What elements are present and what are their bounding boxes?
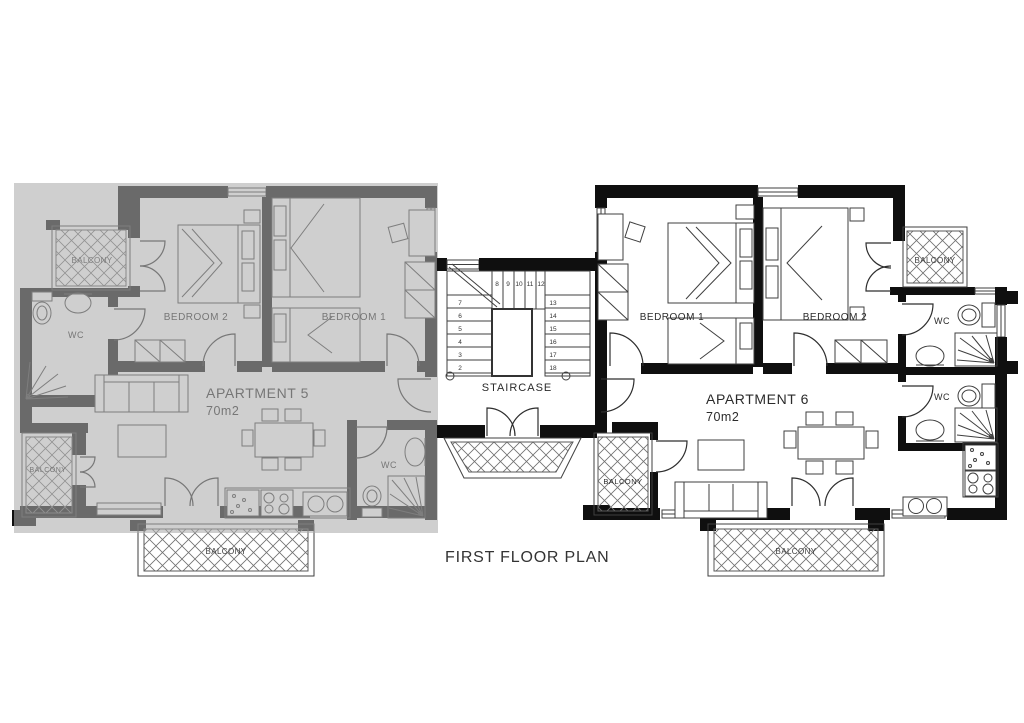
apartment-6-wc-lower-label: WC	[934, 392, 950, 402]
nightstand	[736, 205, 754, 219]
bedroom2-door	[794, 333, 827, 366]
step-number: 13	[549, 300, 557, 307]
entrance-porch	[444, 438, 581, 478]
step-number: 5	[458, 326, 462, 333]
step-number: 14	[549, 313, 557, 320]
wc-door	[902, 386, 933, 417]
side-balcony-door	[656, 441, 687, 472]
step-number: 11	[527, 281, 534, 288]
step-number: 7	[458, 300, 462, 307]
floor-plan-canvas: BALCONY BALCONY BALCONY WC	[0, 0, 1024, 723]
bottom-balcony-door	[825, 478, 853, 506]
apartment-6-bedroom-1: BEDROOM 1	[598, 205, 754, 364]
double-bed	[763, 208, 848, 320]
step-number: 18	[549, 365, 557, 372]
step-number: 8	[495, 281, 499, 288]
apartment-6-wc-upper: WC	[916, 303, 997, 366]
bottom-balcony-door	[792, 478, 820, 506]
step-number: 16	[549, 339, 557, 346]
single-bed	[668, 318, 754, 364]
shower-icon	[955, 333, 997, 366]
apartment-5: BALCONY BALCONY BALCONY WC	[12, 183, 438, 576]
apartment-6-bedroom-2-label: BEDROOM 2	[803, 312, 868, 323]
stair-void	[492, 309, 532, 376]
apartment-6: BALCONY BALCONY BALCONY	[583, 185, 1018, 576]
apartment-6-wc-upper-label: WC	[934, 316, 950, 326]
staircase-label: STAIRCASE	[482, 382, 553, 394]
plan-title: FIRST FLOOR PLAN	[445, 549, 610, 566]
apartment-6-balcony-side-label: BALCONY	[603, 477, 642, 486]
apartment-6-bedroom-2: BEDROOM 2	[763, 208, 887, 363]
apartment-6-living: APARTMENT 6 70m2	[675, 391, 998, 518]
desk	[598, 214, 645, 260]
coffee-table	[698, 440, 744, 470]
dining-table	[784, 412, 878, 474]
balcony-french-door	[866, 266, 891, 291]
sofa	[675, 482, 767, 518]
wc-door	[902, 304, 933, 335]
step-number: 9	[506, 281, 510, 288]
apartment-6-name: APARTMENT 6	[706, 391, 809, 407]
apartment-5-dim-overlay	[14, 183, 438, 533]
apartment-6-balcony-side: BALCONY	[594, 433, 652, 515]
apartment-6-balcony-top-label: BALCONY	[914, 256, 955, 265]
bedroom1-door	[610, 333, 643, 366]
apartment-6-wc-lower: WC	[916, 384, 997, 442]
apartment-6-bedroom-1-label: BEDROOM 1	[640, 312, 705, 323]
step-number: 2	[458, 365, 462, 372]
sink-icon	[903, 497, 947, 516]
staircase: 7 6 5 4 3 2 8 9 10 11 12 13 14 15 16 17 …	[437, 258, 597, 478]
double-bed	[668, 223, 754, 303]
apartment-6-balcony-top: BALCONY	[903, 227, 967, 287]
apartment-6-balcony-bottom: BALCONY	[700, 520, 884, 576]
apartment-5-balcony-bottom-label: BALCONY	[205, 547, 246, 556]
nightstand	[850, 208, 864, 221]
kitchen	[903, 443, 998, 516]
apartment-6-area: 70m2	[706, 410, 739, 424]
wardrobe	[835, 340, 887, 363]
wardrobe	[598, 264, 628, 320]
step-number: 6	[458, 313, 462, 320]
shower-icon	[955, 408, 997, 442]
step-number: 10	[515, 281, 523, 288]
step-number: 3	[458, 352, 462, 359]
building-entrance-door	[487, 408, 538, 436]
balcony-french-door	[866, 243, 891, 268]
step-number: 17	[549, 352, 557, 359]
step-number: 12	[537, 281, 545, 288]
floor-plan-page: BALCONY BALCONY BALCONY WC	[0, 0, 1024, 723]
apartment-6-balcony-bottom-label: BALCONY	[775, 547, 816, 556]
step-number: 15	[549, 326, 557, 333]
step-number: 4	[458, 339, 462, 346]
